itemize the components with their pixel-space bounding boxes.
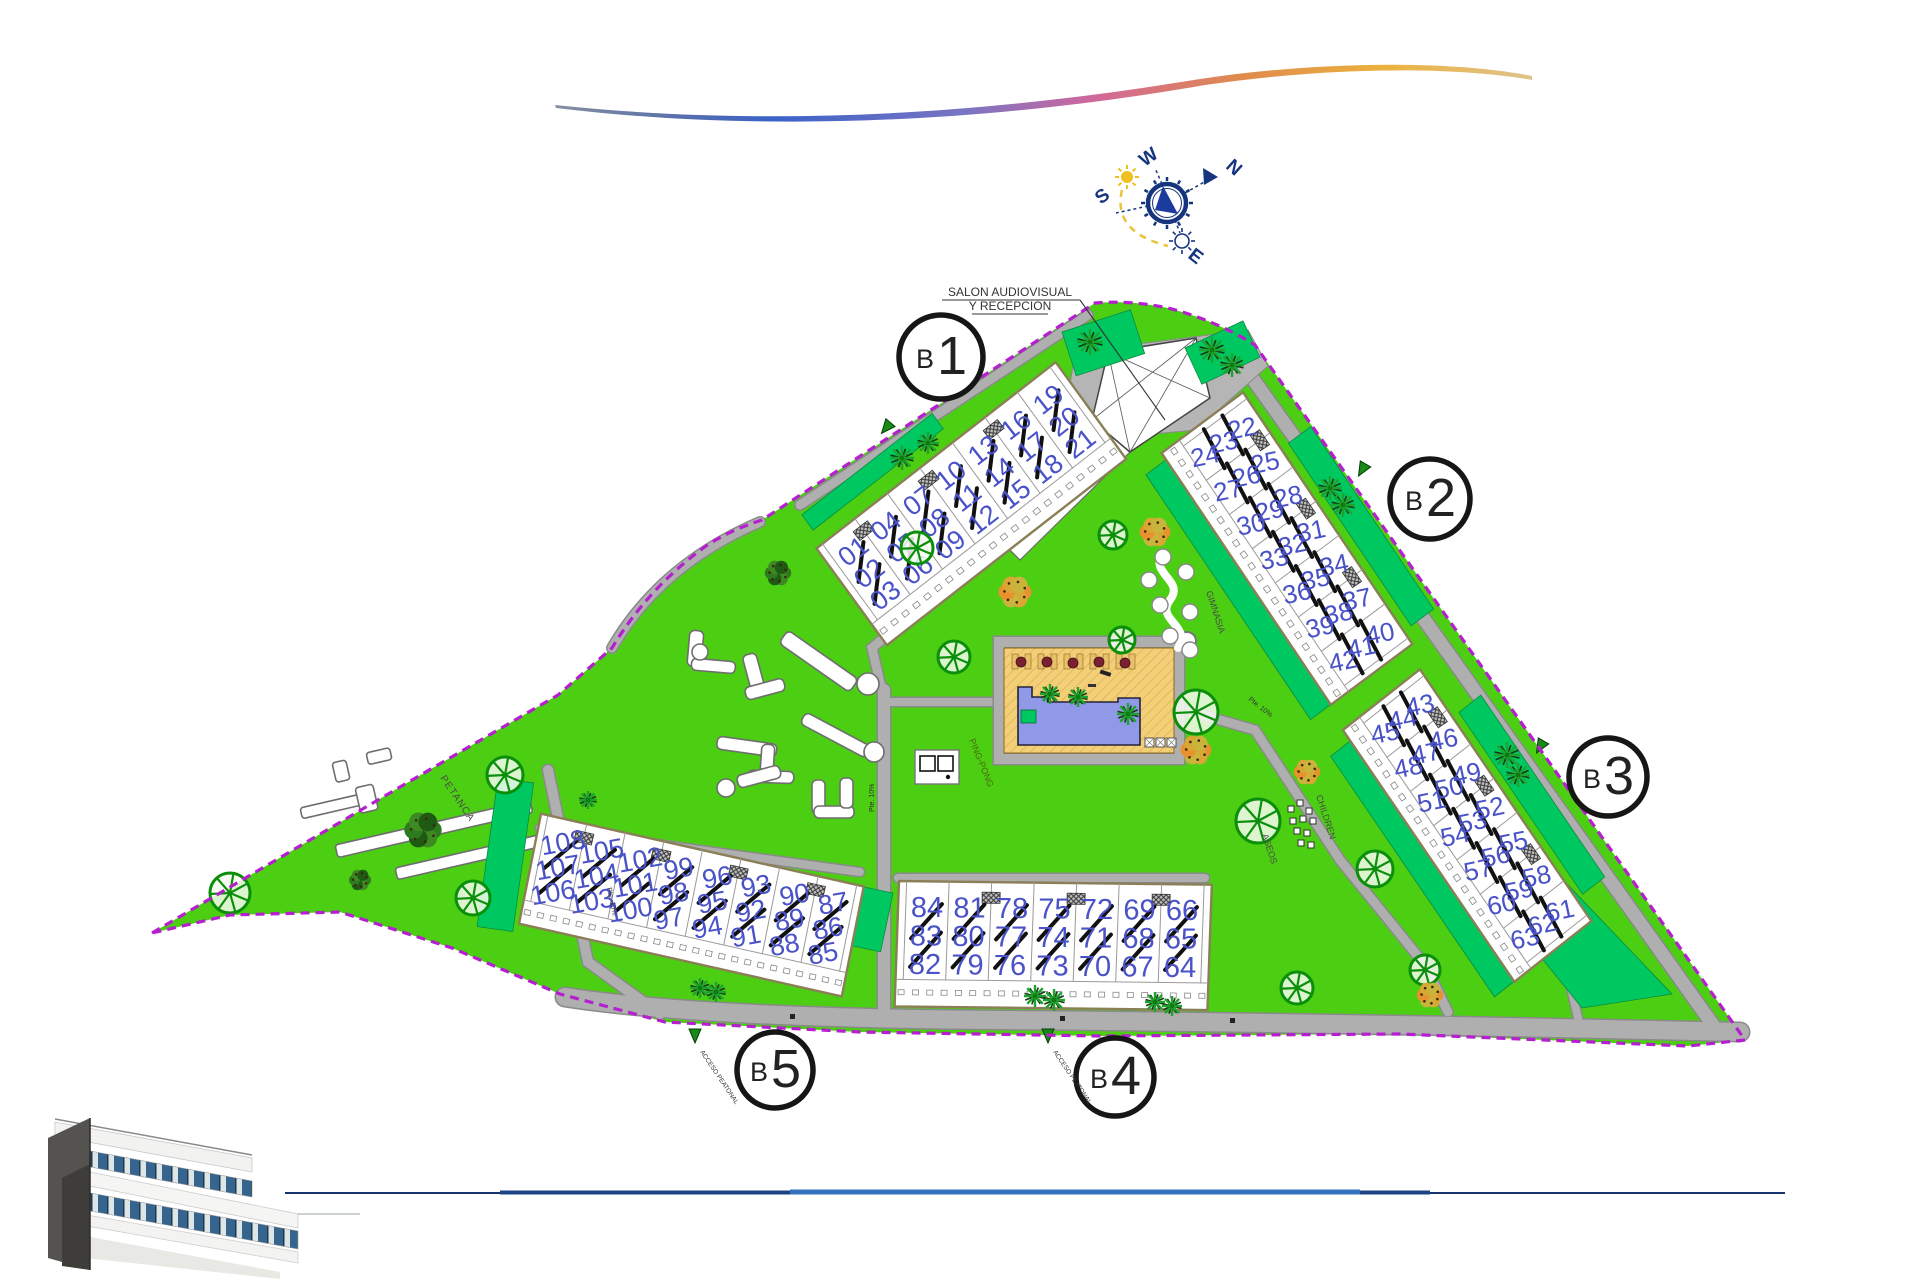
palm-icon [1145,992,1165,1012]
unit-number: 73 [1036,951,1068,983]
pedestrian-access-marker [1353,461,1370,479]
unit-number: 80 [952,921,984,953]
gimnasia-station [1162,628,1178,644]
tree-icon [938,641,970,673]
badge-number: 3 [1604,746,1634,806]
petanca-court [366,748,392,765]
tree-icon [1099,521,1127,549]
palm-icon [1040,684,1060,704]
unit-number: 75 [1038,894,1070,926]
palm-icon [1162,996,1182,1016]
sun-icon [1115,165,1139,189]
gimnasia-station [1141,572,1157,588]
footer-line [285,1192,1785,1193]
svg-text:Pte. 10%: Pte. 10% [869,784,876,812]
building-rendering [48,1118,360,1279]
unit-number: 85 [806,936,841,971]
unit-number: 71 [1080,923,1112,955]
unit-number: 83 [910,921,942,953]
unit-number: 51 [1414,783,1449,818]
unit-number: 36 [1280,575,1315,610]
unit-number: 30 [1234,506,1269,541]
unit-number: 79 [951,950,983,982]
palm-icon [1199,337,1225,363]
pool-tables [1145,738,1176,747]
unit-number: 97 [651,901,686,936]
tree-icon [1236,799,1280,843]
palm-icon [1220,353,1244,377]
palm-icon [1068,687,1088,707]
badge-prefix: B [1090,1064,1108,1094]
palm-icon [1318,476,1342,500]
palm-icon [1117,703,1139,725]
palm-icon [890,446,914,470]
header-swoosh [555,65,1532,122]
gimnasia-station [1155,549,1171,565]
playground-element [1297,800,1303,806]
tree-icon [1174,690,1218,734]
palm-icon [1494,742,1520,768]
badge-prefix: B [750,1057,768,1087]
compass-rose: WNSE [1091,144,1246,269]
unit-number: 68 [1122,923,1154,955]
unit-number: 65 [1165,924,1197,956]
unit-number: 78 [996,893,1028,925]
badge-prefix: B [1583,764,1601,794]
unit-number: 84 [911,892,943,924]
unit-number: 76 [994,950,1026,982]
playground-element [1306,808,1312,814]
unit-number: 81 [953,893,985,925]
gimnasia-station [1152,597,1168,613]
palm-icon [917,432,939,454]
pool-area [999,632,1196,759]
reception-label: SALON AUDIOVISUAL [948,285,1072,299]
unit-number: 74 [1037,922,1069,954]
playground-element [1308,842,1314,848]
unit-number: 42 [1326,643,1361,678]
unit-number: 45 [1368,715,1403,750]
tree-icon [1109,627,1135,653]
unit-number: 72 [1081,894,1113,926]
minigolf-lane [840,778,853,808]
playground-element [1290,818,1296,824]
palm-icon [1331,493,1355,517]
palm-icon [706,982,726,1002]
palm-icon [1077,329,1103,355]
playground-element [1288,806,1294,812]
pedestrian-access-marker [877,419,895,437]
tree-icon [456,881,490,915]
badge-number: 4 [1111,1046,1141,1106]
badge-number: 2 [1426,468,1456,528]
badge-prefix: B [1405,486,1423,516]
pedestrian-access-marker [689,1029,701,1043]
unit-number: 63 [1508,920,1543,955]
unit-number: 94 [690,910,725,945]
gimnasia-station [1182,604,1198,620]
site-plan-drawing: 0102030405060708091011121314151617181920… [0,0,1920,1280]
tree-icon [901,532,933,564]
ping-pong-table [915,750,959,784]
badge-number: 5 [771,1039,801,1099]
petanca-court [355,784,378,813]
playground-element [1298,840,1304,846]
badge-B3: B3 [1569,738,1647,816]
compass-west: W [1135,144,1162,172]
unit-number: 82 [909,949,941,981]
unit-number: 24 [1188,438,1223,473]
playground-element [1304,830,1310,836]
badge-B2: B2 [1390,459,1470,539]
unit-number: 57 [1461,852,1496,887]
unit-number: 48 [1391,749,1426,784]
unit-number: 64 [1164,952,1196,984]
unit-number: 60 [1484,886,1519,921]
palm-icon [579,791,597,809]
badge-prefix: B [916,344,934,374]
playground-element [1300,816,1306,822]
unit-number: 88 [767,927,802,962]
unit-number: 66 [1166,895,1198,927]
compass-south: S [1091,184,1114,208]
petanca-court [332,760,350,783]
badge-number: 1 [937,326,967,386]
svg-text:ACCESO PEATONAL: ACCESO PEATONAL [698,1049,739,1106]
palm-icon [1506,763,1530,787]
site-plan-page: 0102030405060708091011121314151617181920… [0,0,1920,1280]
unit-number: 39 [1303,609,1338,644]
badge-B5: B5 [737,1032,813,1108]
tree-icon [1410,955,1440,985]
unit-number: 77 [995,922,1027,954]
gimnasia-station [1178,564,1194,580]
compass-north: N [1222,156,1246,181]
tree-icon [1357,851,1393,887]
unit-number: 70 [1079,951,1111,983]
unit-number: 69 [1123,895,1155,927]
compass-east: E [1184,244,1207,268]
east-sun-icon [1169,228,1195,254]
gimnasia-station [1182,642,1198,658]
badge-B1: B1 [899,315,983,399]
unit-number: 54 [1438,818,1473,853]
tree-icon [1281,972,1313,1004]
unit-number: 27 [1211,472,1246,507]
unit-number: 33 [1257,541,1292,576]
playground-element [1310,818,1316,824]
unit-number: 67 [1121,952,1153,984]
tree-icon [487,757,523,793]
unit-number: 91 [728,919,763,954]
palm-icon [1043,989,1065,1011]
playground-element [1294,828,1300,834]
palm-icon [1024,985,1046,1007]
